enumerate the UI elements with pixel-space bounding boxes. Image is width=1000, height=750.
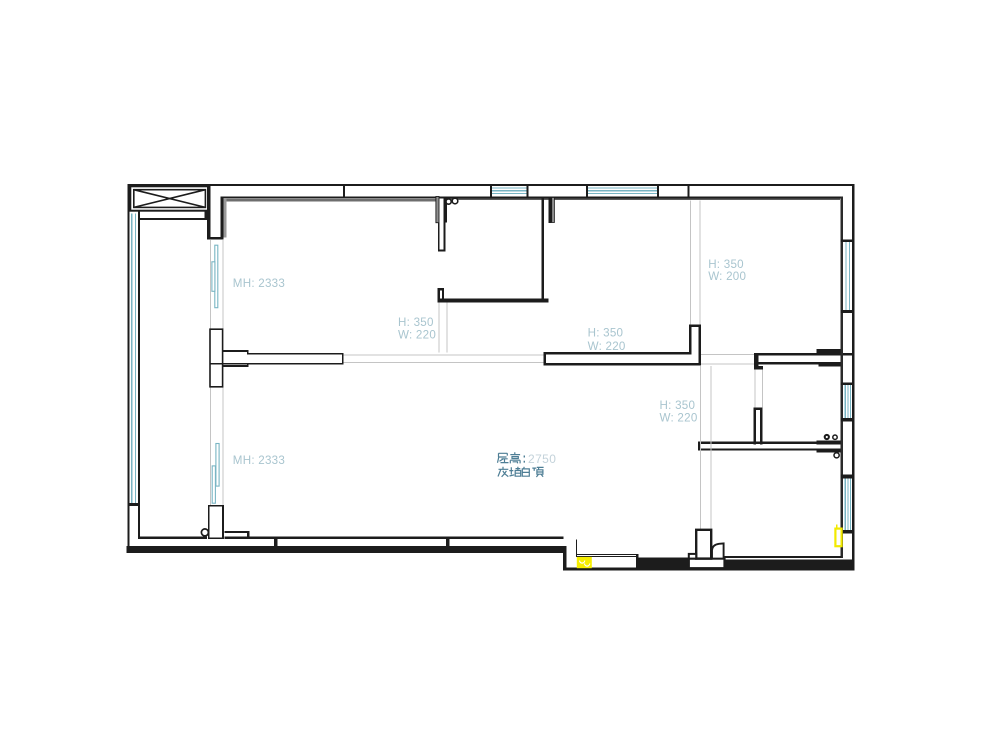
svg-text:W: 200: W: 200: [708, 270, 746, 283]
svg-text:W: 220: W: 220: [660, 412, 698, 425]
svg-text:2750: 2750: [528, 452, 556, 466]
svg-text:MH: 2333: MH: 2333: [233, 277, 285, 290]
svg-text:W: 220: W: 220: [588, 340, 626, 353]
svg-text:H: 350: H: 350: [660, 399, 696, 412]
svg-text:W: 220: W: 220: [398, 329, 436, 342]
svg-text:H: 350: H: 350: [398, 316, 434, 329]
svg-text:H: 350: H: 350: [708, 258, 744, 271]
svg-text:H: 350: H: 350: [588, 327, 624, 340]
svg-text:MH: 2333: MH: 2333: [233, 454, 285, 467]
